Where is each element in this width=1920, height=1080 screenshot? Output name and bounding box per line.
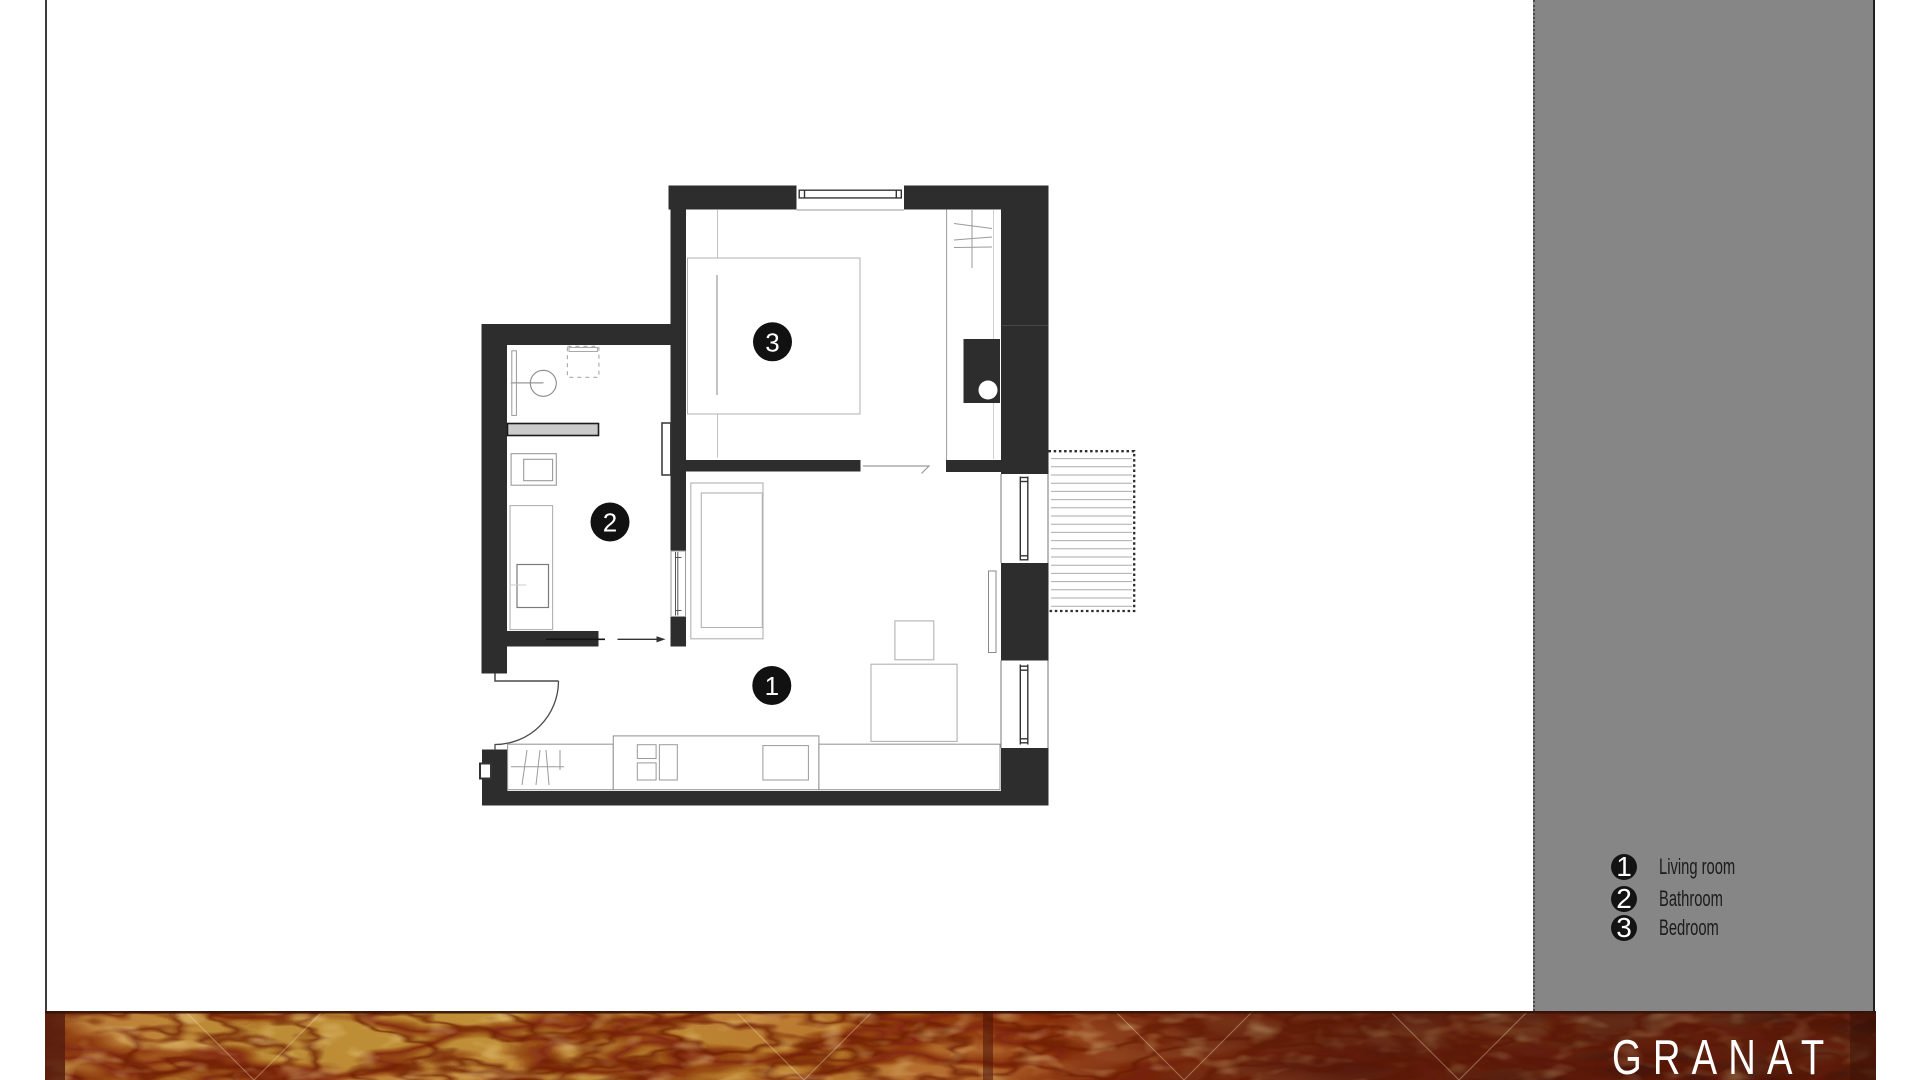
svg-text:1: 1 xyxy=(765,671,779,701)
svg-text:3: 3 xyxy=(765,327,779,357)
svg-text:2: 2 xyxy=(603,508,617,538)
